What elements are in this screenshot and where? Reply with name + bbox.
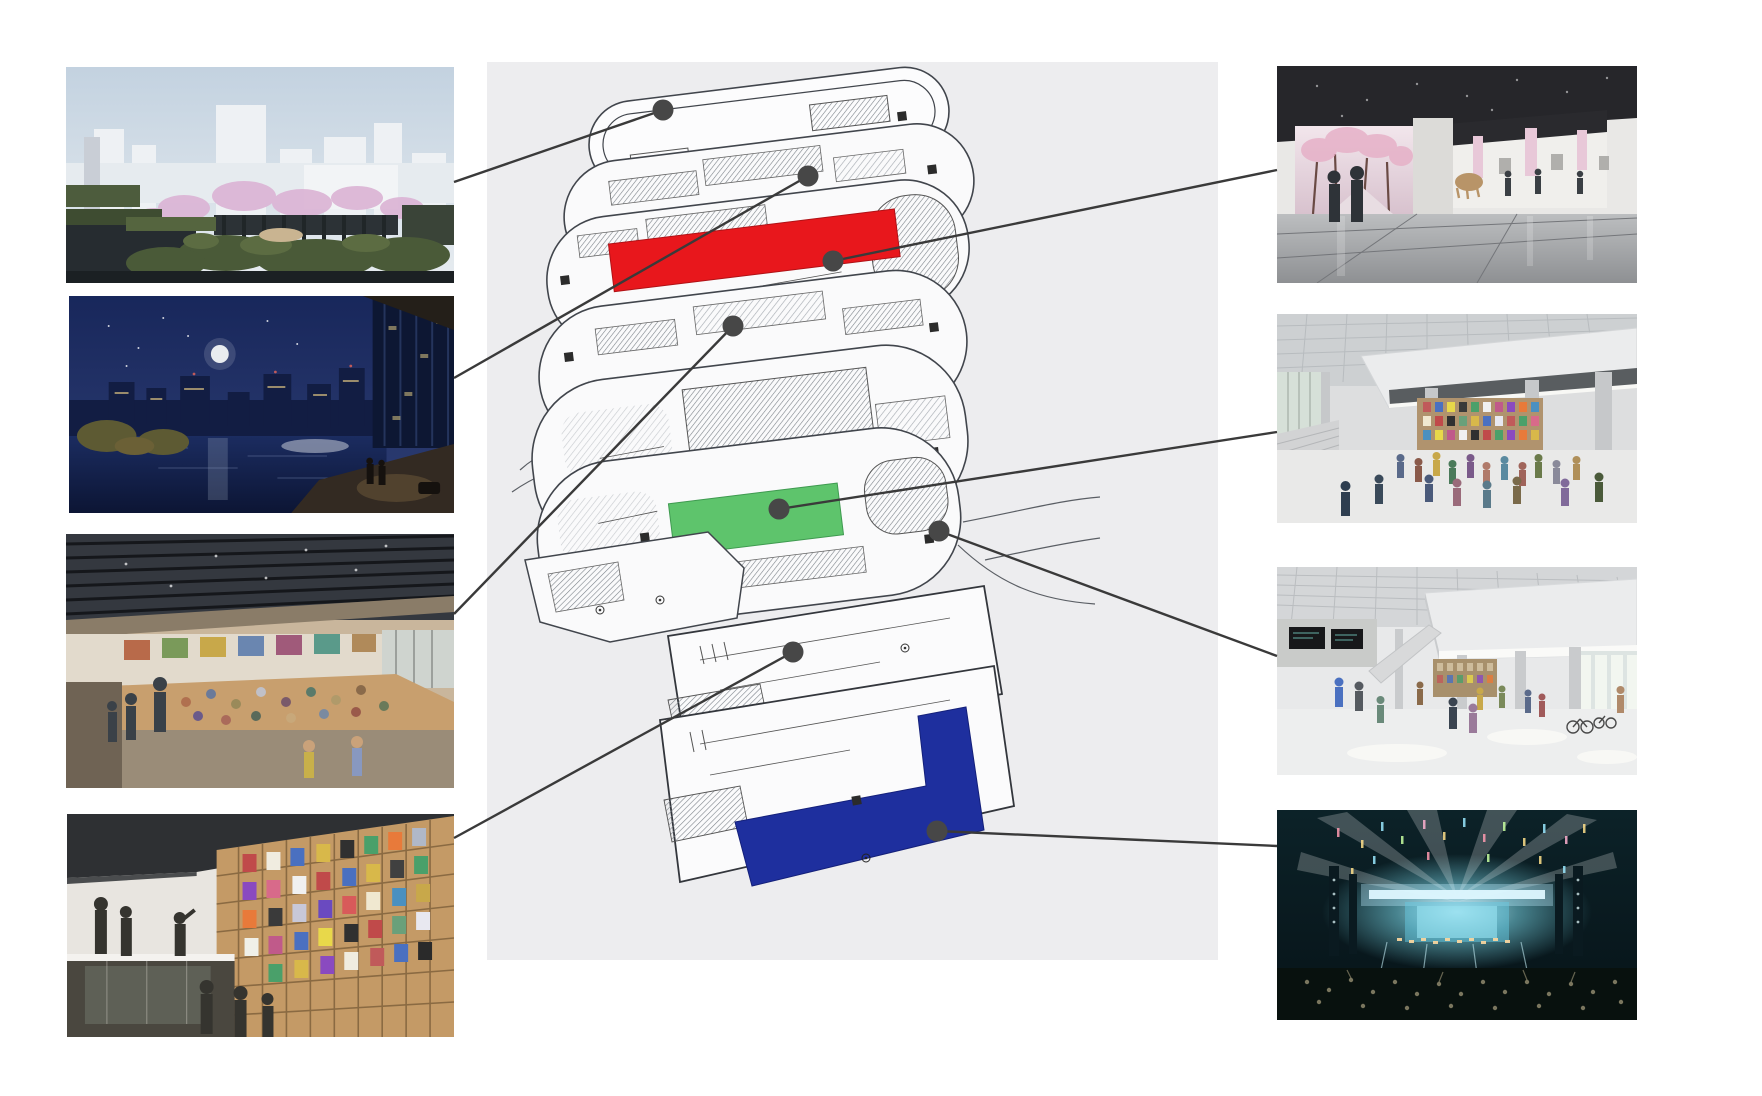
photo-manga-library — [67, 814, 454, 1037]
diagram-background — [487, 62, 1218, 960]
photo-concert-hall — [1277, 810, 1637, 1020]
photo-atrium — [1277, 567, 1637, 775]
photo-rooftop-garden — [66, 67, 454, 283]
photo-event-hall — [1277, 314, 1637, 523]
infographic-canvas — [0, 0, 1762, 1096]
photo-event-platform — [66, 534, 454, 788]
photo-art-gallery — [1277, 66, 1637, 283]
photo-night-terrace — [69, 296, 454, 513]
